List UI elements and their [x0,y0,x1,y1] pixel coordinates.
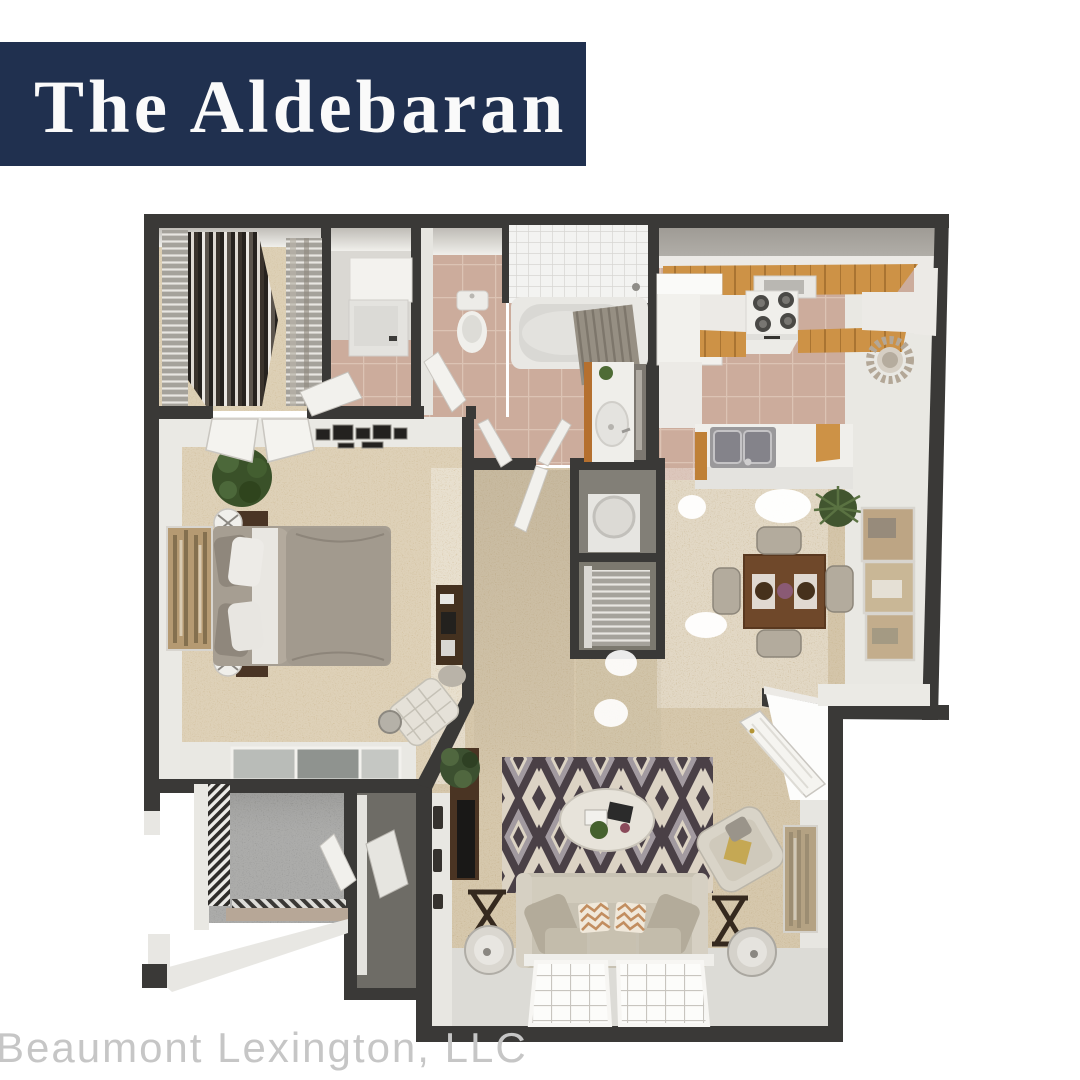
svg-text:Beaumont Lexington, LLC: Beaumont Lexington, LLC [0,1024,528,1071]
svg-text:The Aldebaran: The Aldebaran [34,66,567,149]
